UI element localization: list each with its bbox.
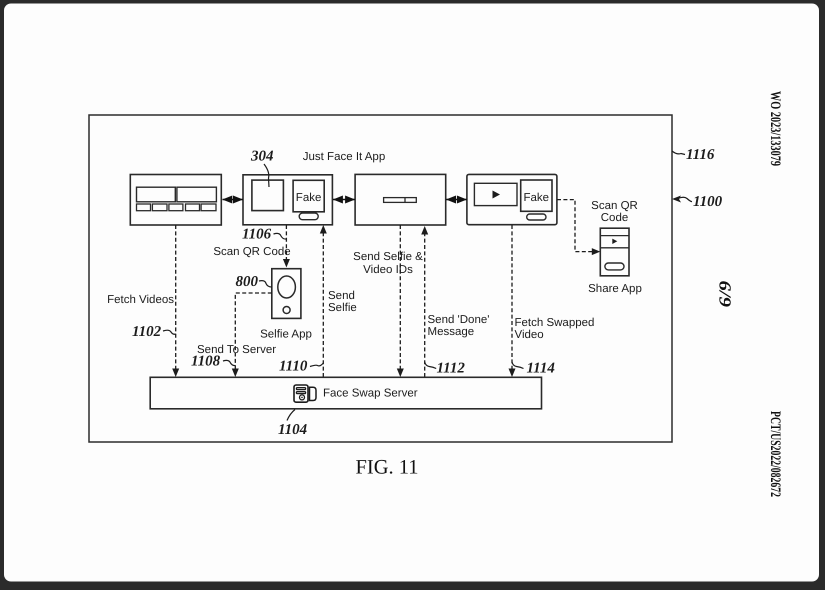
svg-text:1100: 1100 [693,194,723,210]
svg-text:Fetch Swapped: Fetch Swapped [515,317,595,329]
svg-text:Video IDs: Video IDs [363,264,413,276]
svg-text:1116: 1116 [686,147,715,163]
svg-text:FIG. 11: FIG. 11 [355,457,418,479]
svg-text:Selfie: Selfie [328,302,357,314]
svg-text:6/9: 6/9 [716,281,735,308]
svg-text:Send: Send [328,290,355,302]
svg-text:WO 2023/133079: WO 2023/133079 [767,91,783,166]
svg-text:Code: Code [601,212,629,224]
svg-text:Fake: Fake [296,192,322,204]
svg-text:Message: Message [428,326,475,338]
svg-text:Face Swap Server: Face Swap Server [323,388,418,400]
svg-text:800: 800 [236,274,259,290]
svg-text:Share App: Share App [588,283,642,295]
svg-text:Send Selfie &: Send Selfie & [353,251,423,263]
svg-text:Just Face It App: Just Face It App [303,151,385,163]
svg-text:1112: 1112 [437,361,466,377]
svg-text:304: 304 [250,149,274,165]
svg-text:Video: Video [515,329,544,341]
svg-text:1108: 1108 [191,354,221,370]
svg-text:Fetch Videos: Fetch Videos [107,294,174,306]
svg-text:1110: 1110 [279,359,308,375]
svg-text:1102: 1102 [132,324,162,340]
svg-text:Scan QR Code: Scan QR Code [213,246,290,258]
svg-text:1104: 1104 [278,422,308,438]
svg-text:1114: 1114 [527,361,556,377]
svg-text:Selfie App: Selfie App [260,329,312,341]
svg-text:Scan QR: Scan QR [591,200,638,212]
svg-text:Send 'Done': Send 'Done' [428,314,490,326]
svg-text:Fake: Fake [524,192,550,204]
svg-text:1106: 1106 [242,227,272,243]
svg-text:PCT/US2022/082672: PCT/US2022/082672 [767,411,783,497]
